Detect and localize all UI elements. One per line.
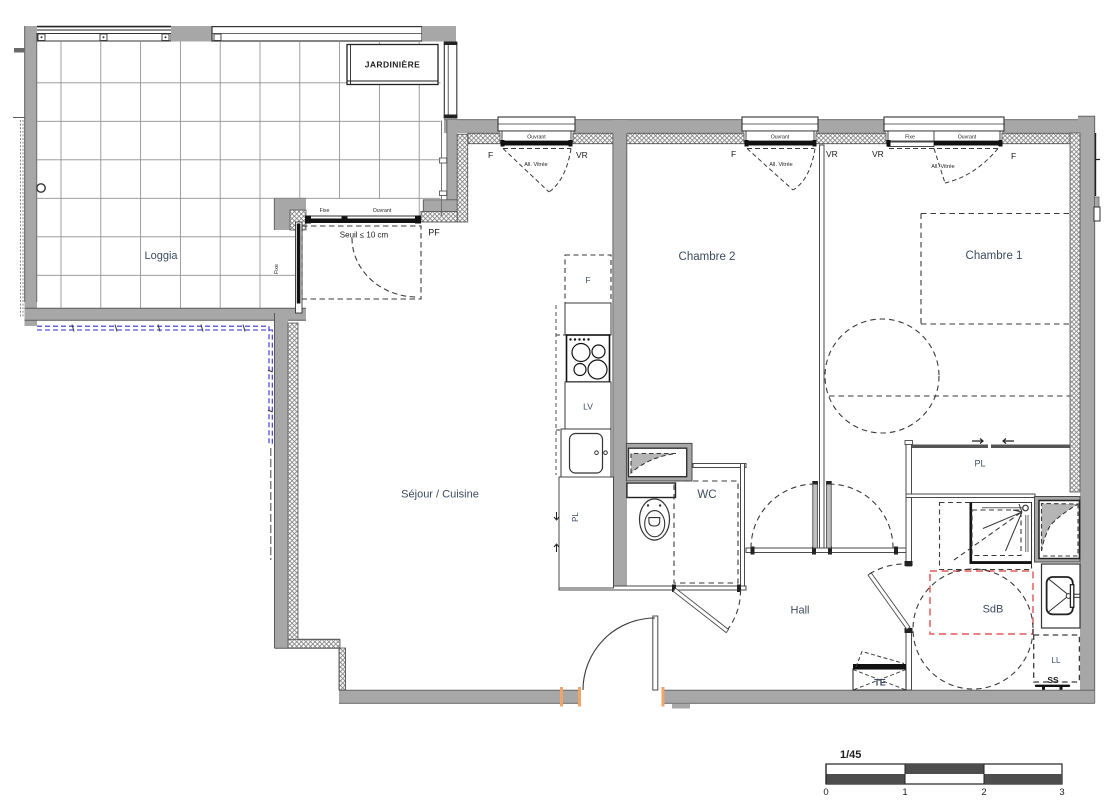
- svg-text:3: 3: [1059, 787, 1064, 798]
- svg-text:2: 2: [981, 787, 986, 798]
- svg-text:JARDINIÈRE: JARDINIÈRE: [365, 60, 420, 70]
- svg-text:Chambre 1: Chambre 1: [966, 250, 1023, 262]
- svg-text:1/45: 1/45: [840, 749, 861, 761]
- svg-text:Hall: Hall: [791, 605, 810, 617]
- svg-text:Seuil ≤ 10 cm: Seuil ≤ 10 cm: [340, 231, 389, 240]
- svg-text:All. Vitrée: All. Vitrée: [524, 162, 547, 168]
- svg-text:Fixe: Fixe: [274, 264, 280, 274]
- svg-text:TE: TE: [874, 678, 886, 688]
- svg-text:Ouvrant: Ouvrant: [958, 135, 977, 141]
- svg-text:PL: PL: [571, 512, 580, 522]
- svg-text:Chambre 2: Chambre 2: [679, 251, 736, 263]
- svg-text:LV: LV: [583, 402, 593, 412]
- svg-text:Ouvrant: Ouvrant: [527, 135, 546, 141]
- svg-text:F: F: [488, 150, 493, 160]
- svg-text:VR: VR: [872, 149, 884, 159]
- svg-text:Fixe: Fixe: [905, 135, 915, 141]
- svg-text:1: 1: [902, 787, 907, 798]
- svg-text:SdB: SdB: [983, 604, 1004, 616]
- svg-text:Séjour / Cuisine: Séjour / Cuisine: [401, 489, 479, 501]
- svg-text:Fixe: Fixe: [320, 208, 330, 214]
- svg-text:Ouvrant: Ouvrant: [771, 135, 790, 141]
- svg-text:All. Vitrée: All. Vitrée: [931, 164, 954, 170]
- svg-text:F: F: [585, 275, 590, 285]
- svg-text:VR: VR: [576, 150, 588, 160]
- svg-text:SS: SS: [1047, 675, 1059, 685]
- svg-text:PF: PF: [428, 228, 440, 238]
- svg-text:WC: WC: [697, 489, 716, 501]
- svg-text:F: F: [1011, 151, 1016, 161]
- svg-text:F: F: [731, 149, 736, 159]
- svg-text:Loggia: Loggia: [144, 250, 178, 262]
- svg-text:VR: VR: [826, 149, 838, 159]
- svg-text:Ouvrant: Ouvrant: [373, 208, 392, 214]
- svg-text:All. Vitrée: All. Vitrée: [769, 162, 792, 168]
- svg-text:0: 0: [823, 787, 828, 798]
- svg-text:LL: LL: [1052, 656, 1061, 665]
- svg-text:PL: PL: [974, 459, 985, 469]
